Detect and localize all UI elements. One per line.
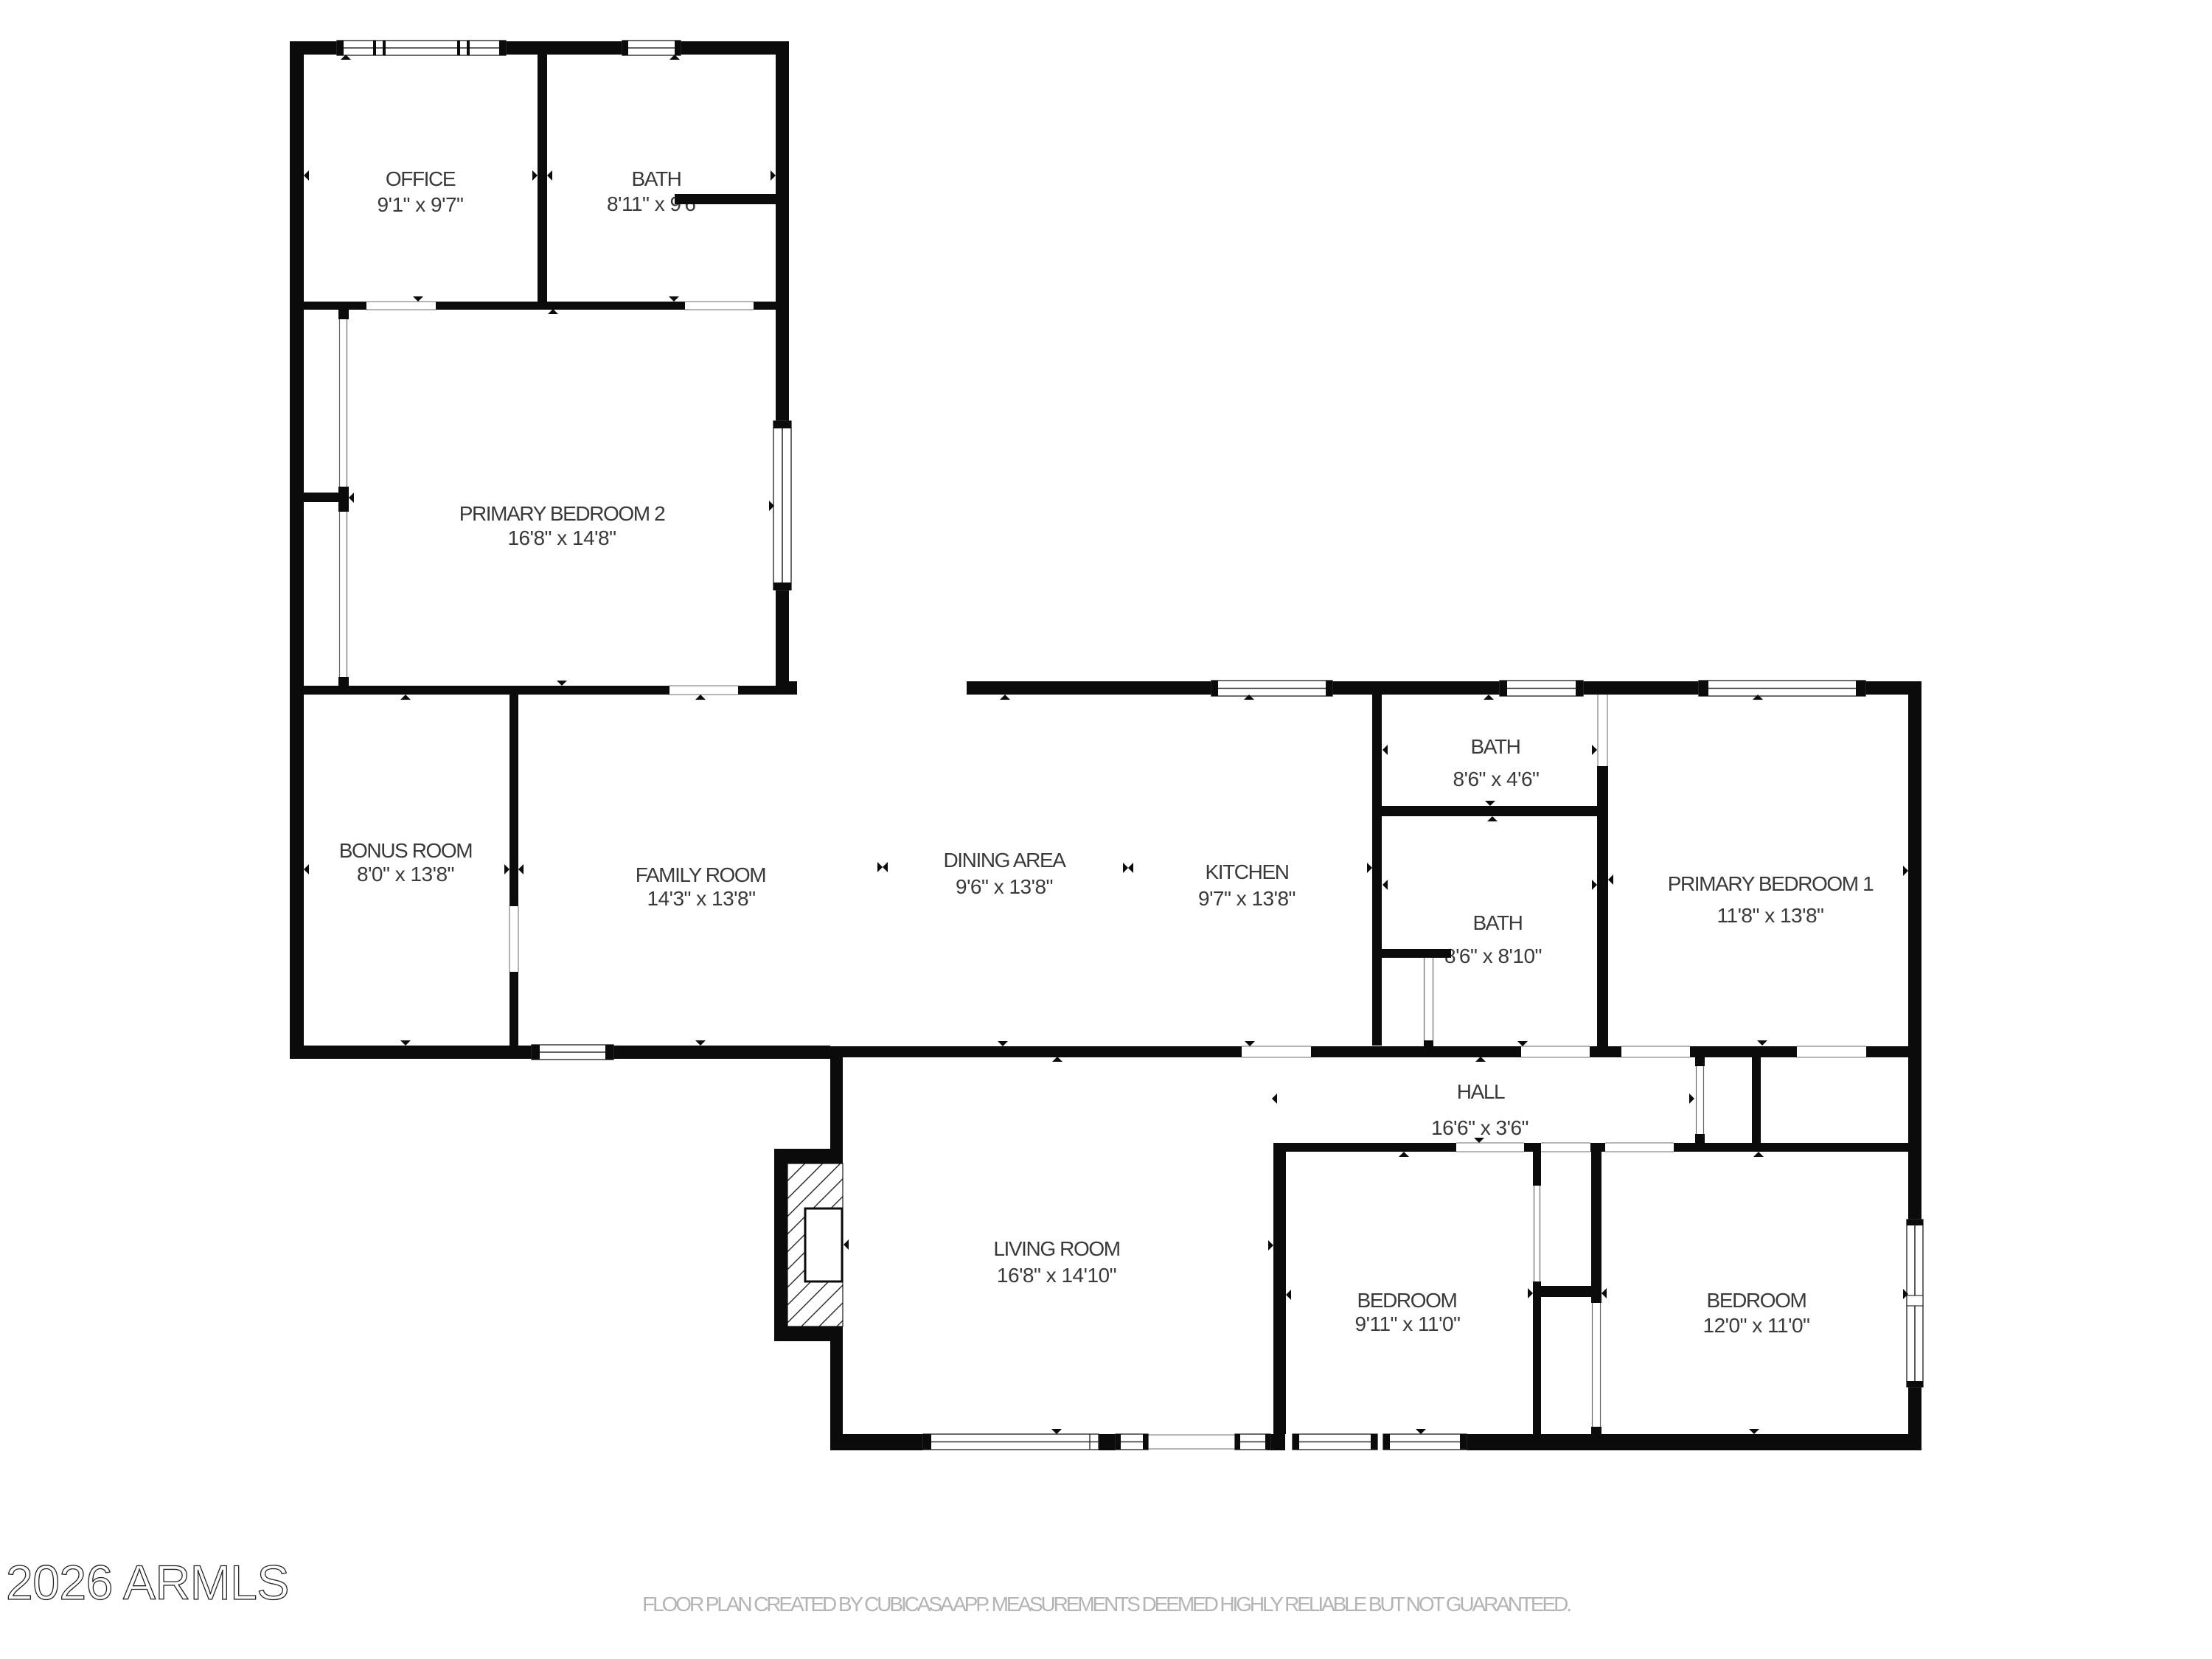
svg-text:KITCHEN: KITCHEN — [1205, 860, 1288, 883]
svg-text:LIVING ROOM: LIVING ROOM — [993, 1237, 1119, 1260]
svg-text:8'0" x 13'8": 8'0" x 13'8" — [357, 863, 454, 886]
svg-text:BATH: BATH — [632, 167, 681, 190]
svg-text:BEDROOM: BEDROOM — [1357, 1289, 1457, 1312]
svg-text:9'11" x 11'0": 9'11" x 11'0" — [1355, 1312, 1461, 1335]
svg-text:BONUS ROOM: BONUS ROOM — [339, 839, 473, 862]
svg-text:PRIMARY BEDROOM 1: PRIMARY BEDROOM 1 — [1668, 872, 1874, 895]
svg-text:9'7" x 13'8": 9'7" x 13'8" — [1198, 887, 1295, 910]
svg-text:FAMILY ROOM: FAMILY ROOM — [636, 863, 766, 886]
svg-text:2026 ARMLS: 2026 ARMLS — [6, 1555, 289, 1610]
svg-text:BEDROOM: BEDROOM — [1707, 1289, 1806, 1312]
svg-text:16'8" x 14'8": 16'8" x 14'8" — [507, 526, 616, 549]
svg-text:HALL: HALL — [1457, 1080, 1505, 1103]
svg-text:DINING AREA: DINING AREA — [943, 849, 1066, 872]
svg-text:12'0" x 11'0": 12'0" x 11'0" — [1703, 1314, 1810, 1337]
svg-text:16'6" x 3'6": 16'6" x 3'6" — [1431, 1116, 1528, 1139]
svg-text:9'6" x 13'8": 9'6" x 13'8" — [956, 875, 1053, 898]
svg-text:OFFICE: OFFICE — [386, 167, 456, 190]
svg-text:BATH: BATH — [1473, 911, 1523, 934]
svg-text:9'1" x 9'7": 9'1" x 9'7" — [378, 193, 464, 216]
svg-text:FLOOR PLAN CREATED BY CUBICASA: FLOOR PLAN CREATED BY CUBICASA APP. MEAS… — [642, 1593, 1571, 1615]
svg-text:16'8" x 14'10": 16'8" x 14'10" — [997, 1264, 1116, 1287]
svg-text:BATH: BATH — [1471, 735, 1520, 758]
svg-text:14'3" x 13'8": 14'3" x 13'8" — [647, 887, 755, 910]
svg-text:PRIMARY BEDROOM 2: PRIMARY BEDROOM 2 — [459, 502, 665, 525]
svg-text:8'6" x 4'6": 8'6" x 4'6" — [1453, 768, 1540, 790]
svg-text:11'8" x 13'8": 11'8" x 13'8" — [1717, 904, 1824, 927]
svg-text:8'6" x 8'10": 8'6" x 8'10" — [1444, 945, 1542, 967]
